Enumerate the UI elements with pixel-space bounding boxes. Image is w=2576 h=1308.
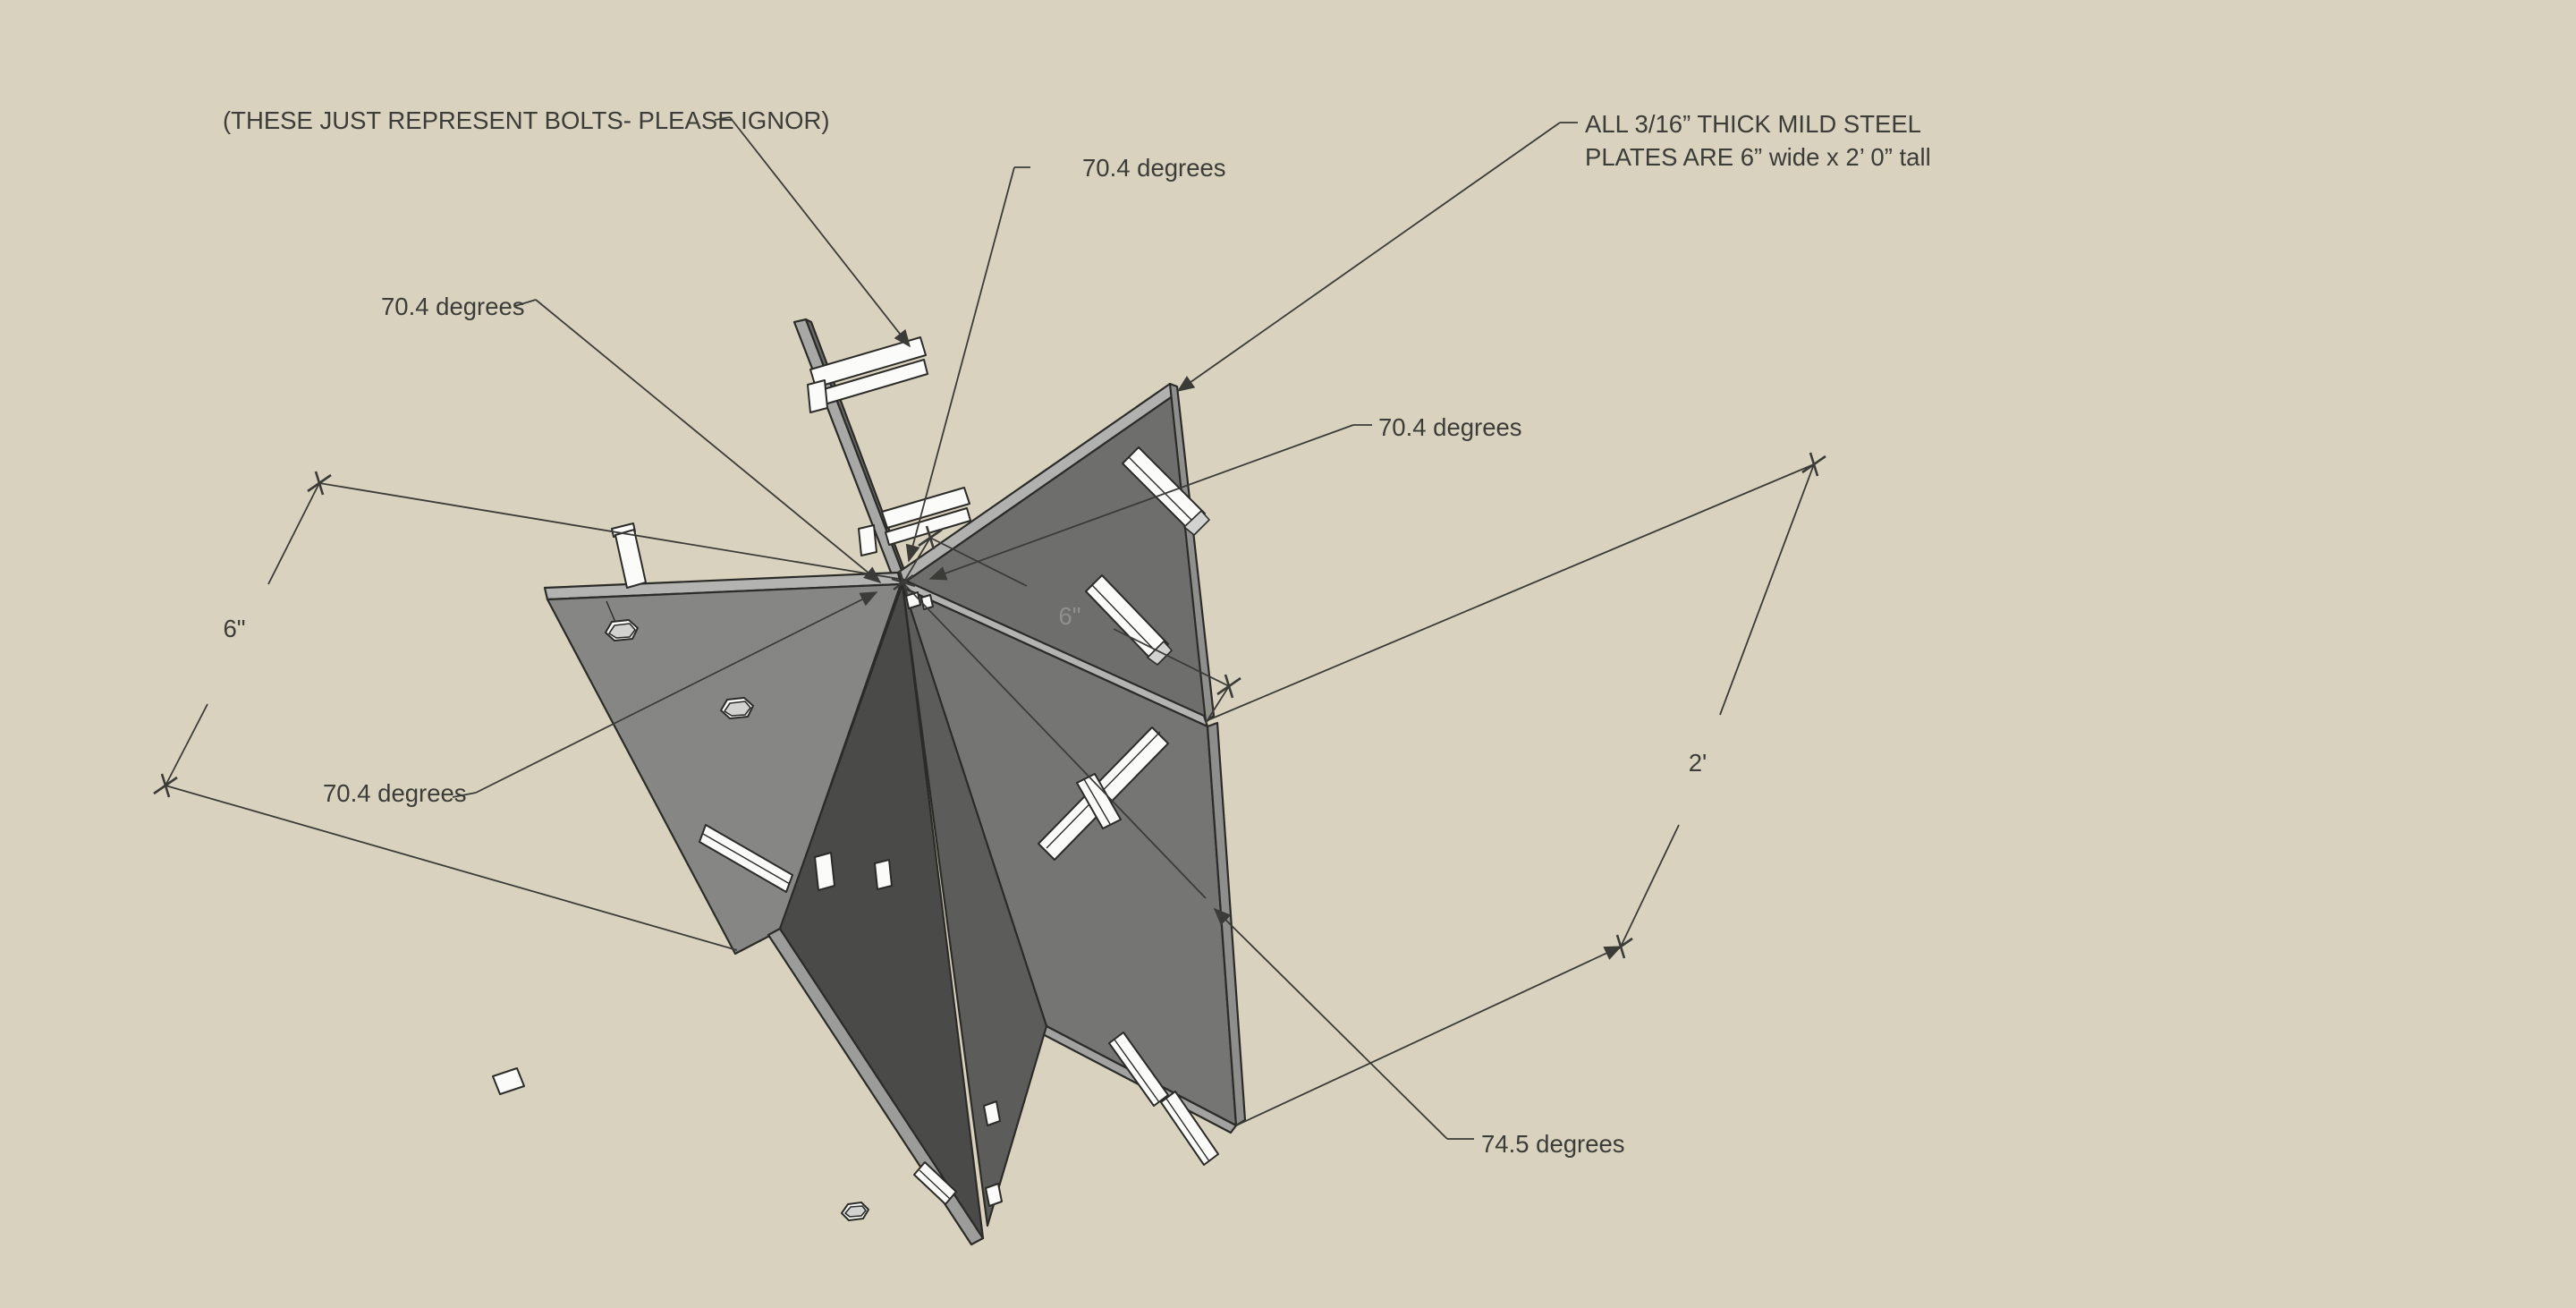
angle-bottom-right-label: 74.5 degrees (1481, 1130, 1625, 1158)
angle-right-label: 70.4 degrees (1378, 413, 1522, 441)
dim-center-label: 6" (1058, 602, 1080, 630)
spec-line1-label: ALL 3/16” THICK MILD STEEL (1585, 110, 1921, 138)
front-plate-tab-4 (986, 1184, 1002, 1206)
leader-angle-upper-left (515, 300, 880, 582)
leader-spec (1178, 123, 1578, 391)
front-plate-tab-2 (875, 860, 892, 889)
angle-top-label: 70.4 degrees (1082, 154, 1226, 182)
angle-upper-left-label: 70.4 degrees (381, 293, 525, 320)
hex-bolt-bottom (842, 1202, 869, 1220)
front-plate-tab-1 (815, 853, 835, 890)
model-viewport[interactable]: (THESE JUST REPRESENT BOLTS- PLEASE IGNO… (0, 0, 2576, 1308)
front-plate-tab-3 (984, 1101, 1000, 1125)
bolts-note-label: (THESE JUST REPRESENT BOLTS- PLEASE IGNO… (223, 106, 829, 134)
angle-lower-left-label: 70.4 degrees (323, 779, 467, 807)
fin-top-bolt (808, 337, 928, 412)
dimension-2ft-right (1206, 453, 1826, 1125)
leader-bolts-note (715, 117, 910, 346)
sketchup-canvas: (THESE JUST REPRESENT BOLTS- PLEASE IGNO… (0, 0, 2576, 1308)
left-plate-hex-bolt-2 (721, 698, 753, 718)
dim-right-label: 2' (1689, 749, 1707, 777)
stray-bolt (493, 1068, 524, 1094)
spec-line2-label: PLATES ARE 6” wide x 2’ 0” tall (1585, 143, 1931, 171)
dim-left-label: 6" (223, 615, 245, 642)
